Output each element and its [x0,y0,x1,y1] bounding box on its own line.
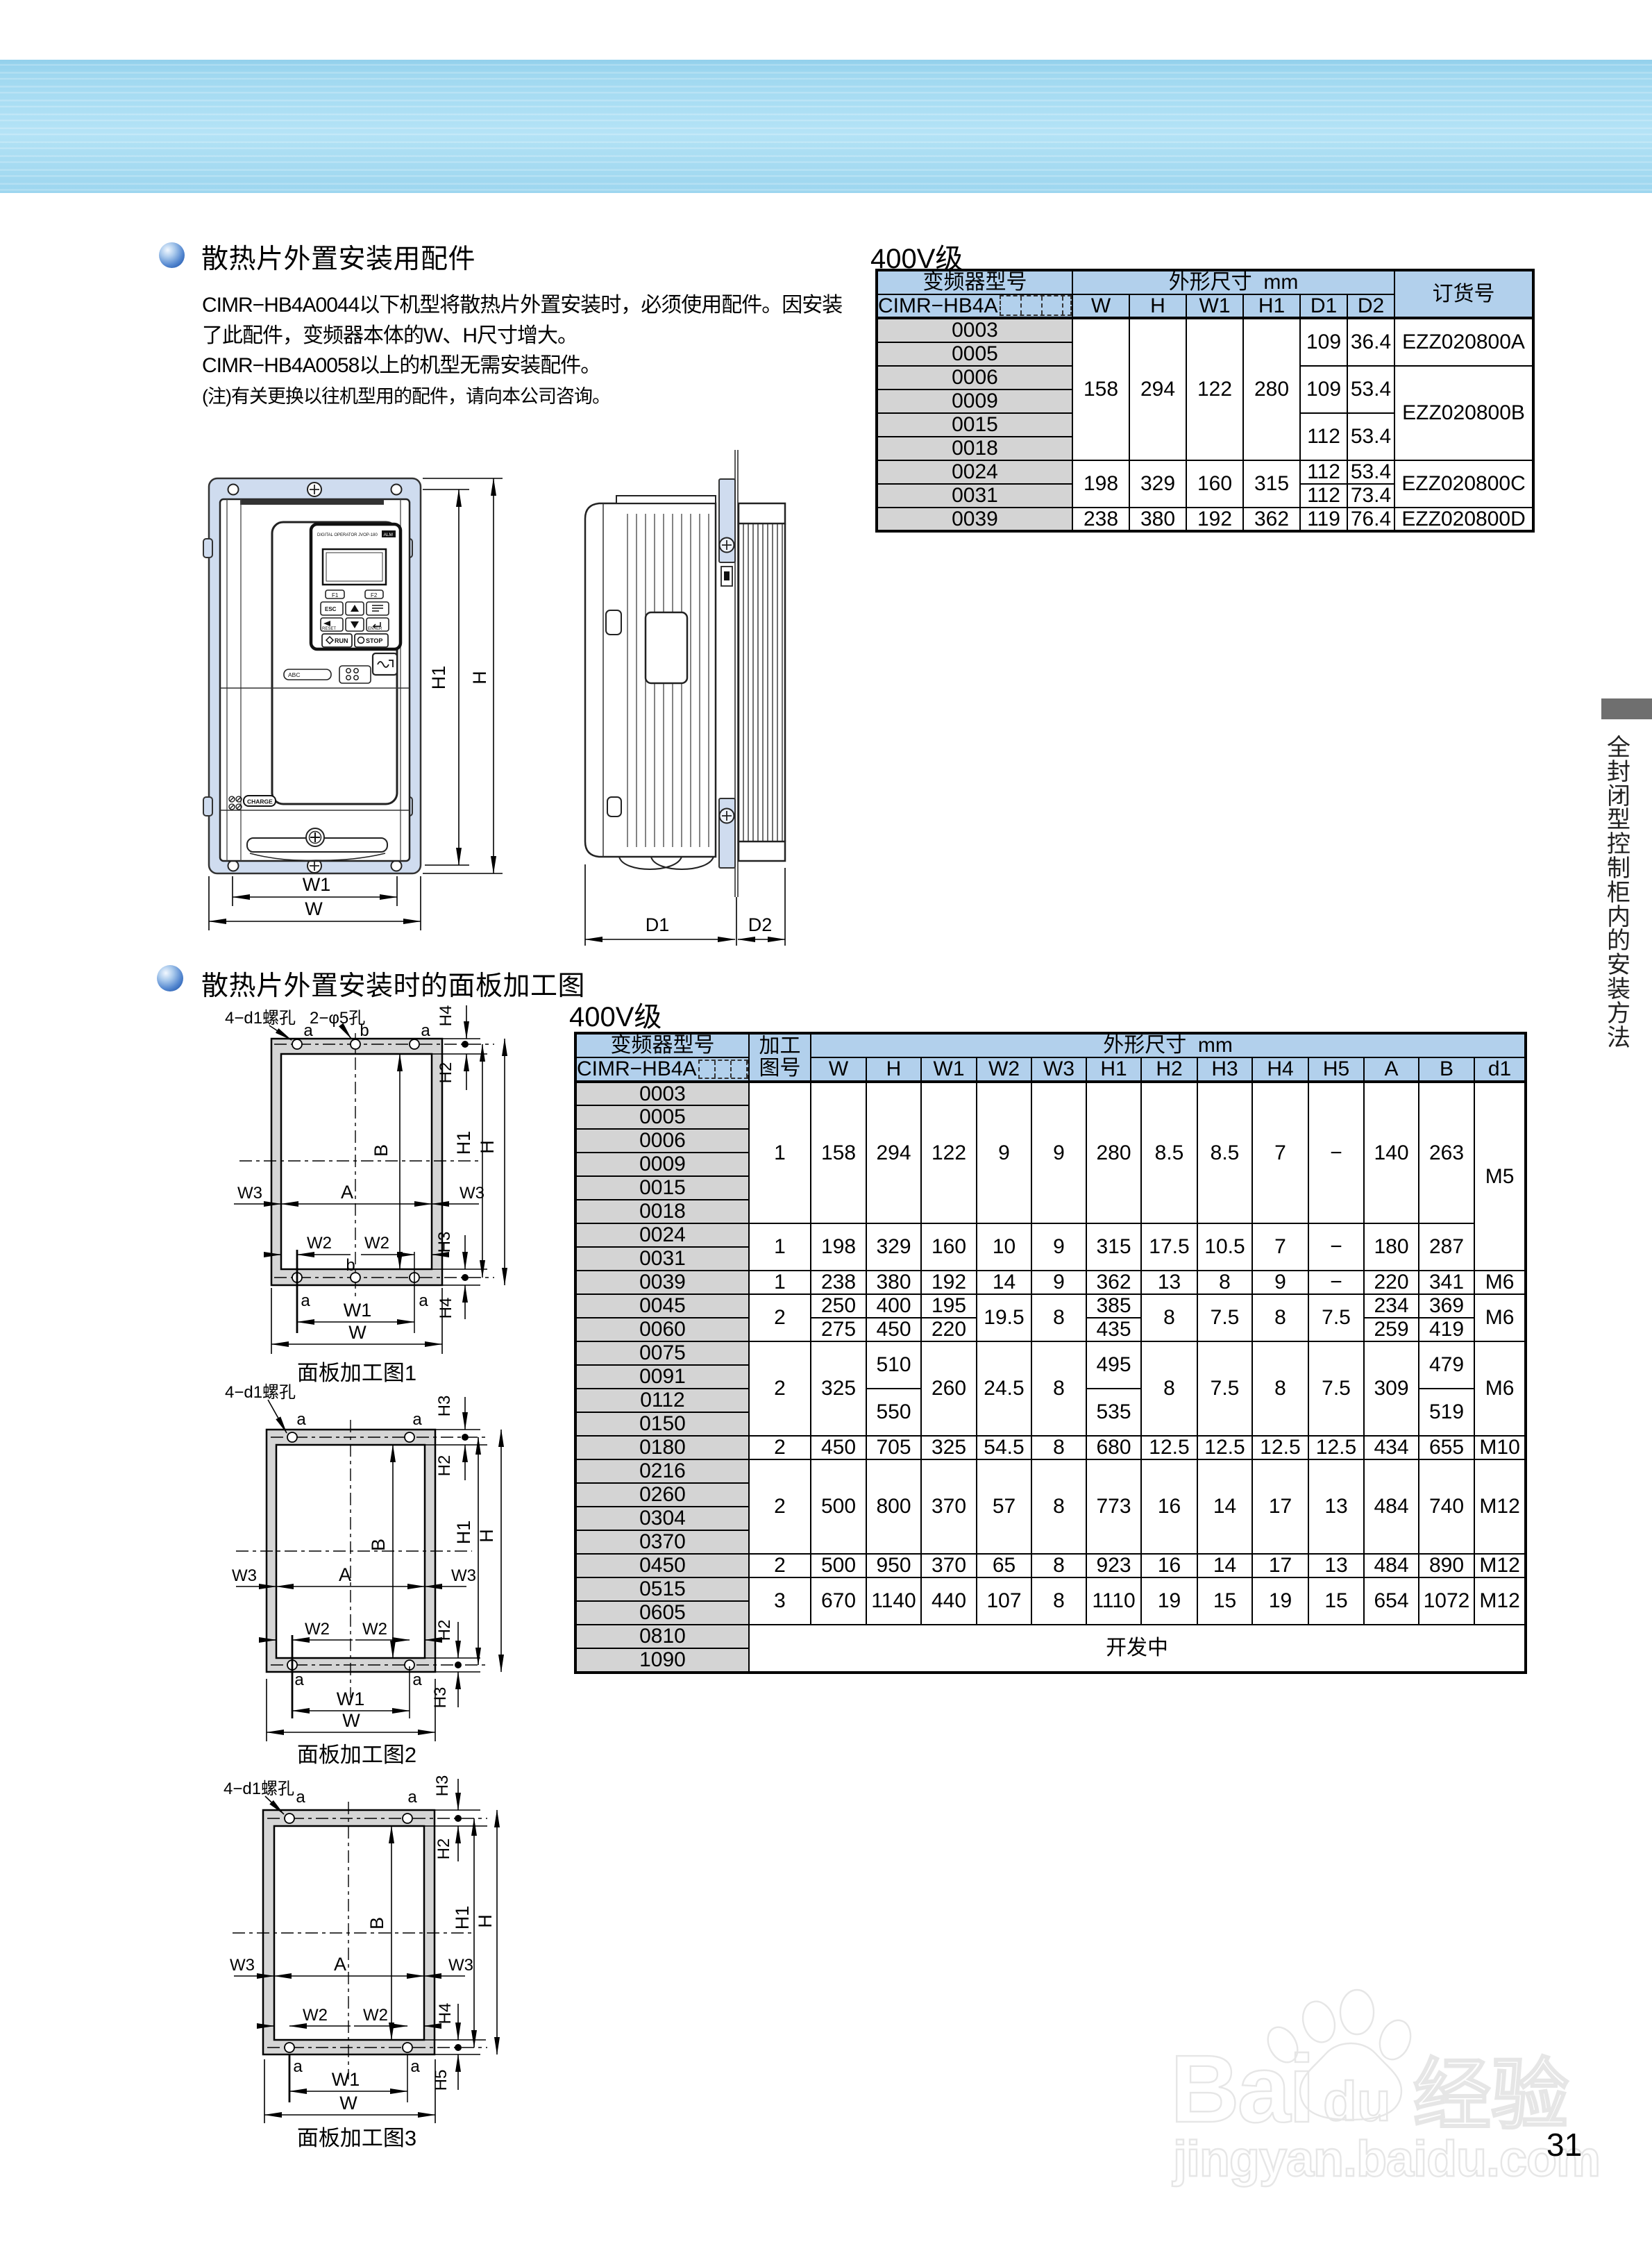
svg-text:2−φ5孔: 2−φ5孔 [310,1009,365,1028]
svg-text:H4: H4 [437,1005,455,1027]
svg-text:B: B [366,1917,387,1929]
svg-text:a: a [294,1671,304,1689]
svg-text:jingyan.baidu.com: jingyan.baidu.com [1172,2132,1600,2187]
svg-text:W3: W3 [230,1956,255,1975]
svg-text:A: A [339,1564,351,1585]
svg-text:W2: W2 [303,2006,328,2025]
svg-text:D2: D2 [748,914,773,935]
svg-text:W: W [339,2093,357,2113]
svg-text:A: A [334,1954,346,1975]
svg-text:a: a [410,2057,420,2076]
svg-text:W2: W2 [362,1620,387,1639]
svg-text:W: W [305,898,323,919]
svg-text:ESC: ESC [325,606,337,612]
svg-text:b: b [360,1021,369,1040]
svg-text:du: du [1323,2070,1391,2132]
svg-text:W: W [342,1710,360,1731]
svg-text:W3: W3 [232,1566,257,1585]
svg-text:H: H [475,1914,496,1928]
svg-text:H2: H2 [435,1839,453,1860]
svg-text:ALM: ALM [384,533,393,537]
svg-text:B: B [371,1144,391,1157]
svg-text:a: a [303,1021,313,1040]
svg-text:a: a [412,1410,422,1429]
svg-text:W3: W3 [451,1566,476,1585]
svg-text:H4: H4 [437,1298,455,1319]
svg-text:a: a [293,2057,303,2076]
svg-text:b: b [346,1256,355,1275]
svg-text:H1: H1 [453,1521,474,1545]
svg-text:W2: W2 [307,1234,332,1253]
svg-text:H: H [477,1140,498,1154]
svg-text:H: H [469,671,490,685]
svg-text:a: a [296,1410,306,1429]
svg-text:H4: H4 [436,2003,455,2025]
svg-text:a: a [296,1788,305,1807]
svg-text:a: a [407,1788,417,1807]
svg-text:W3: W3 [237,1184,262,1203]
svg-text:W1: W1 [332,2069,360,2090]
svg-text:B: B [368,1539,389,1551]
svg-text:H1: H1 [453,1131,474,1155]
svg-text:4−d1螺孔: 4−d1螺孔 [225,1009,296,1028]
svg-text:a: a [421,1021,430,1040]
svg-text:A: A [341,1182,353,1203]
svg-text:CHARGE: CHARGE [247,798,273,805]
svg-text:F2: F2 [371,592,378,598]
svg-text:D1: D1 [646,914,670,935]
svg-text:H3: H3 [435,1232,454,1253]
svg-text:H2: H2 [437,1062,455,1084]
svg-text:经验: 经验 [1413,2052,1569,2138]
svg-text:ABC: ABC [288,671,300,678]
svg-text:面板加工图3: 面板加工图3 [297,2126,416,2150]
svg-text:H3: H3 [435,1396,454,1417]
svg-text:RUN: RUN [335,637,348,644]
svg-text:H: H [476,1529,497,1543]
svg-text:Bai: Bai [1170,2036,1313,2143]
svg-text:W2: W2 [364,1234,389,1253]
svg-text:H3: H3 [433,1775,452,1797]
svg-text:H2: H2 [435,1620,454,1641]
svg-text:W3: W3 [460,1184,484,1203]
svg-text:H1: H1 [452,1906,473,1930]
svg-text:H1: H1 [428,666,449,690]
svg-text:W1: W1 [337,1689,365,1709]
svg-text:DIGITAL OPERATOR JVOP-180: DIGITAL OPERATOR JVOP-180 [317,533,378,537]
svg-text:a: a [301,1291,310,1310]
svg-text:W: W [348,1322,366,1343]
svg-text:H5: H5 [432,2070,450,2091]
svg-text:a: a [419,1291,428,1310]
svg-text:W2: W2 [305,1620,330,1639]
svg-text:STOP: STOP [366,637,382,644]
svg-text:4−d1螺孔: 4−d1螺孔 [225,1383,296,1402]
svg-text:RESET: RESET [322,627,336,631]
svg-text:W2: W2 [363,2006,388,2025]
svg-text:W3: W3 [448,1956,473,1975]
svg-text:H3: H3 [431,1687,450,1709]
svg-text:H2: H2 [435,1455,454,1477]
svg-text:F1: F1 [332,592,339,598]
svg-text:4−d1螺孔: 4−d1螺孔 [224,1780,294,1798]
svg-text:W1: W1 [303,874,331,895]
svg-text:ENTER: ENTER [368,627,382,631]
svg-text:a: a [412,1671,422,1689]
svg-text:W1: W1 [344,1300,372,1321]
